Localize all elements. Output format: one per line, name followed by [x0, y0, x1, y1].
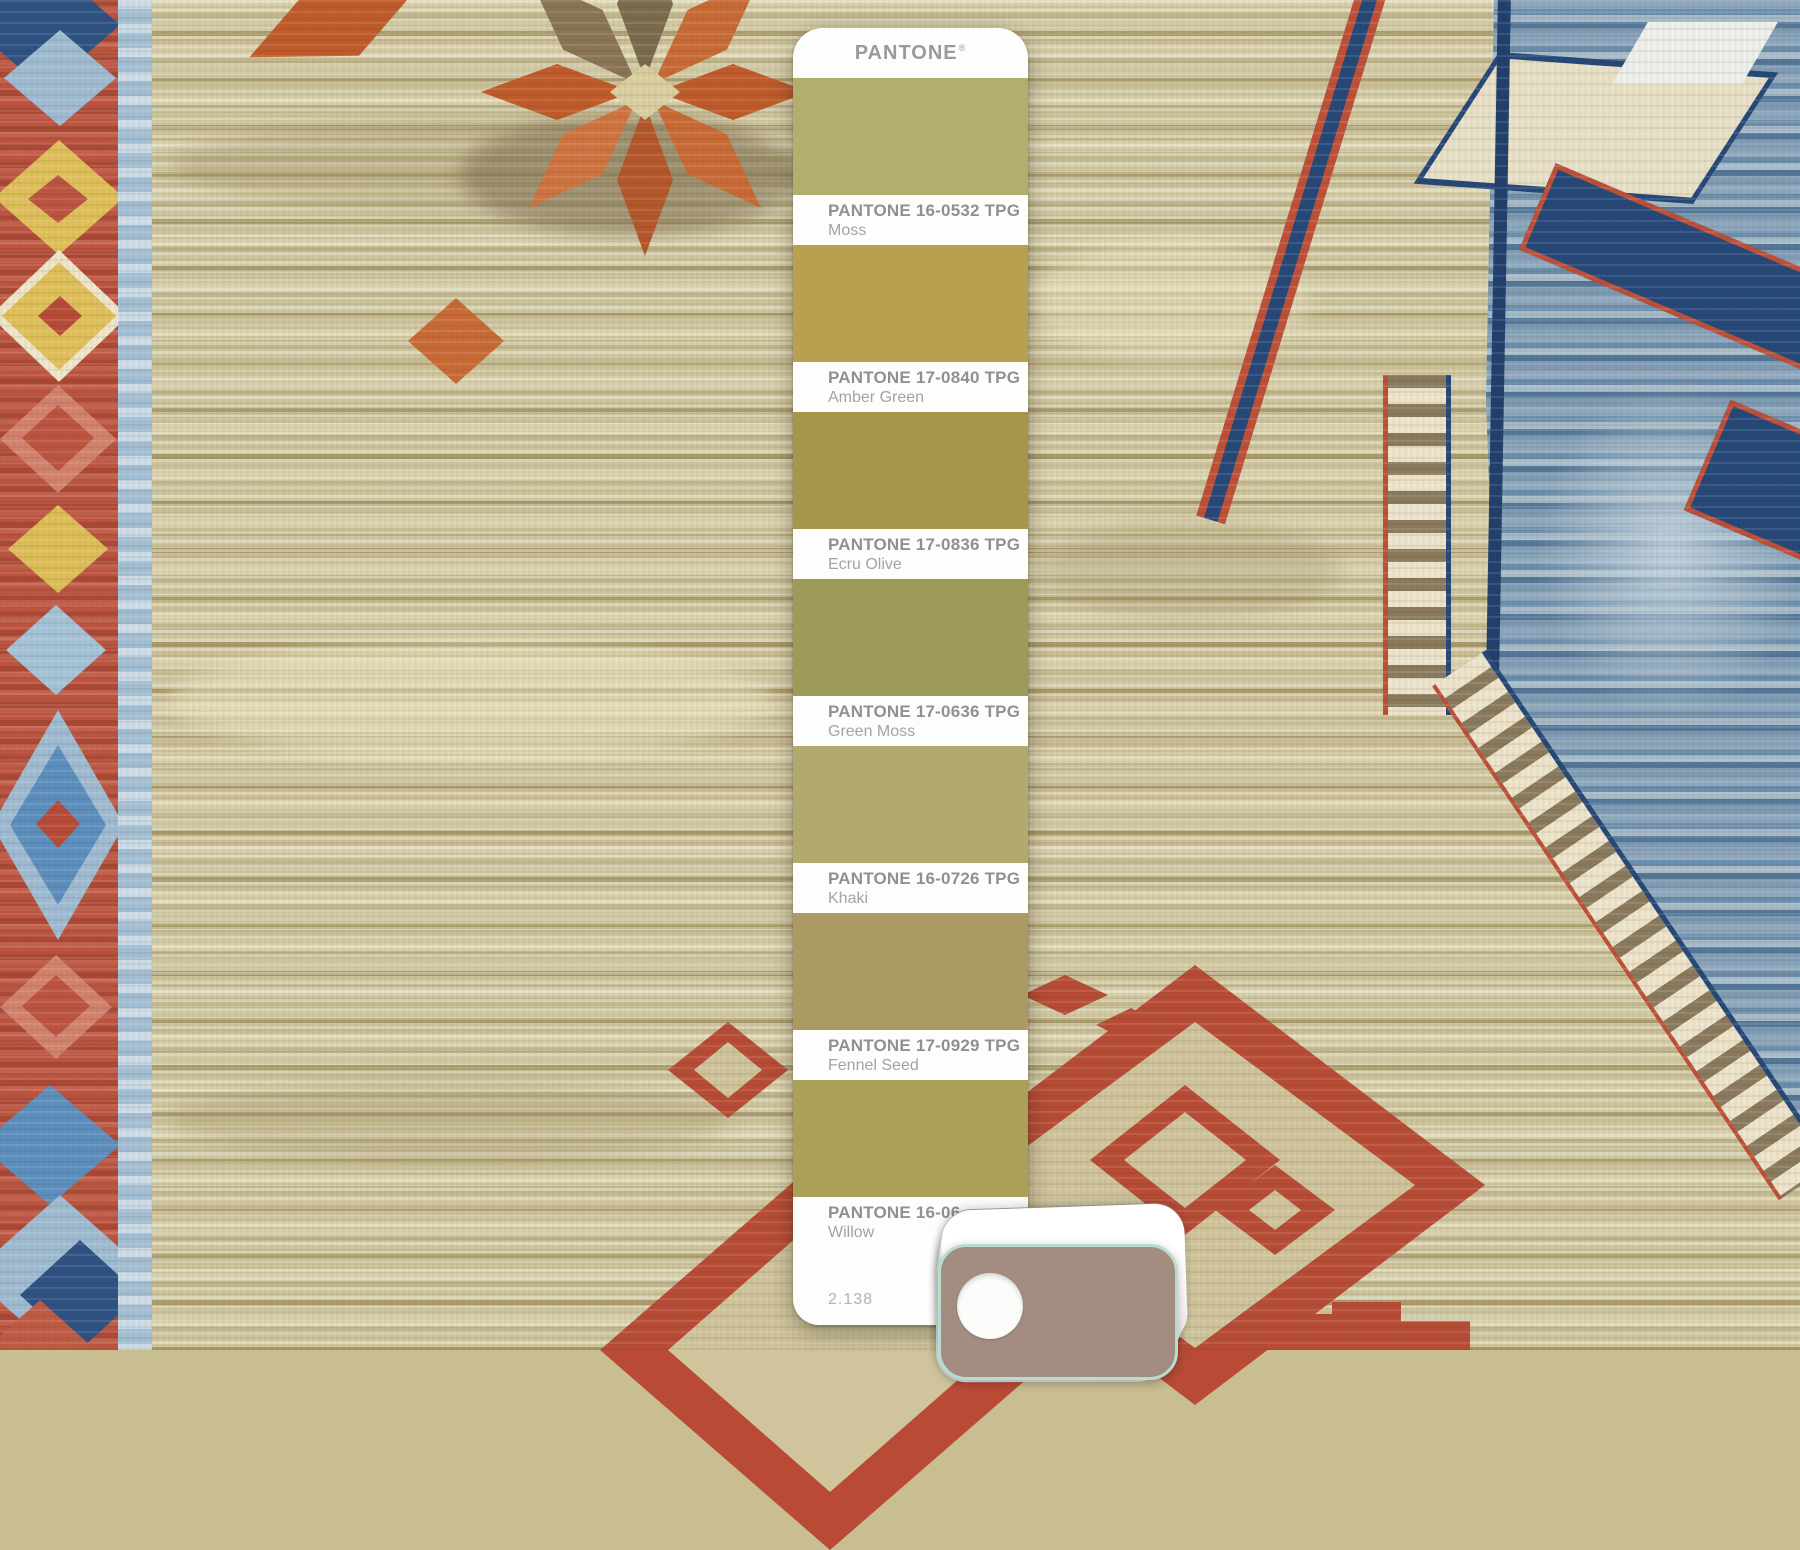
color-code: PANTONE 16-0532 TPG — [828, 201, 1028, 221]
color-name: Fennel Seed — [828, 1056, 1028, 1076]
color-chip-label: PANTONE 17-0840 TPG Amber Green — [793, 362, 1028, 412]
swatch-deck-stack — [928, 1198, 1188, 1350]
color-chip-label: PANTONE 17-0636 TPG Green Moss — [793, 696, 1028, 746]
color-name: Ecru Olive — [828, 555, 1028, 575]
pantone-logo: PANTONE® — [855, 42, 967, 65]
red-medallion-shape — [1022, 975, 1108, 1015]
color-chip — [793, 913, 1028, 1030]
color-code: PANTONE 17-0636 TPG — [828, 702, 1028, 722]
color-name: Khaki — [828, 889, 1028, 909]
punch-hole — [957, 1273, 1023, 1339]
color-name: Amber Green — [828, 388, 1028, 408]
color-chip — [793, 78, 1028, 195]
color-code: PANTONE 17-0840 TPG — [828, 368, 1028, 388]
deck-top-card — [938, 1244, 1178, 1380]
color-code: PANTONE 17-0836 TPG — [828, 535, 1028, 555]
color-code: PANTONE 16-0726 TPG — [828, 869, 1028, 889]
color-chip — [793, 746, 1028, 863]
pantone-fan-strip: PANTONE® PANTONE 16-0532 TPG Moss PANTON… — [793, 28, 1028, 1325]
color-chip-label: PANTONE 16-0726 TPG Khaki — [793, 863, 1028, 913]
color-chip — [793, 412, 1028, 529]
pantone-header: PANTONE® — [793, 28, 1028, 78]
color-chip — [793, 245, 1028, 362]
color-name: Moss — [828, 221, 1028, 241]
color-name: Green Moss — [828, 722, 1028, 742]
color-chip — [793, 579, 1028, 696]
page-number: 2.138 — [828, 1291, 873, 1309]
color-code: PANTONE 17-0929 TPG — [828, 1036, 1028, 1056]
registered-trademark: ® — [959, 43, 967, 53]
color-chip — [793, 1080, 1028, 1197]
color-chip-label: PANTONE 16-0532 TPG Moss — [793, 195, 1028, 245]
color-chip-label: PANTONE 17-0836 TPG Ecru Olive — [793, 529, 1028, 579]
color-chip-label: PANTONE 17-0929 TPG Fennel Seed — [793, 1030, 1028, 1080]
photo-scene: { "pantone_strip": { "brand": "PANTONE",… — [0, 0, 1800, 1350]
